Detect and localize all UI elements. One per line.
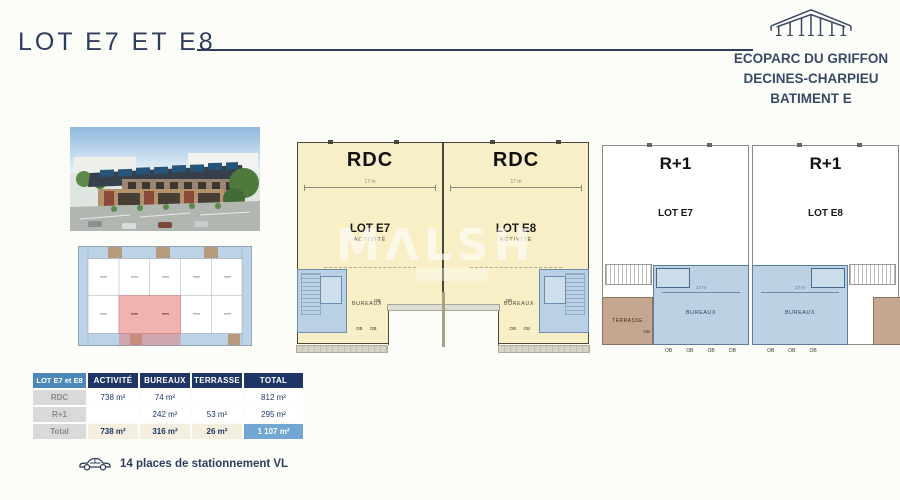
ob-label: OB [509,326,516,331]
malsh-watermark: MΛLSH [336,220,535,271]
building-render-image [70,127,260,231]
cell-rdc-activite: 738 m² [88,390,138,405]
dimension-text: 17 m [298,179,442,185]
brand-block: ECOPARC DU GRIFFON DECINES-CHARPIEU BATI… [722,6,900,109]
terrasse-zone [873,297,900,345]
dimension-tick [490,140,495,144]
dimension-tick [857,143,862,147]
cell-rdc-total: 812 m² [244,390,303,405]
car-icon [78,455,112,477]
dimension-line [450,187,582,188]
dimension-line [304,187,436,188]
dimension-text: 17 m [753,285,847,290]
title-rule [197,49,753,51]
ob-label: OB [356,326,363,331]
bureaux-label: BUREAUX [654,310,748,316]
dimension-tick [647,143,652,147]
floor-label-rdc: RDC [298,149,442,172]
r1-plan-lot-e7: R+1 LOT E7 17 m BUREAUX TERRASSE OB OB O… [602,145,749,345]
dimension-tick [394,140,399,144]
terrasse-zone: TERRASSE OB [602,297,653,345]
dimension-tick [328,140,333,144]
brand-name: ECOPARC DU GRIFFON [722,49,900,69]
stairs-hatch [301,273,321,315]
dimension-text: 17 m [654,285,748,290]
row-label-r1: R+1 [33,407,86,422]
building-frame-icon [763,31,859,48]
bureaux-zone: 17 m BUREAUX [653,265,749,345]
cell-total-bureaux: 316 m² [140,424,190,439]
ob-label: OB [707,348,714,354]
dimension-text: 17 m [444,179,588,185]
ob-label: OB [523,326,530,331]
entrance-notch [388,311,444,345]
cell-rdc-bureaux: 74 m² [140,390,190,405]
bureaux-zone: 17 m BUREAUX [752,265,848,345]
exterior-stairs-hatch [605,264,652,285]
ob-label: OB [665,348,672,354]
stairwell-zone [539,269,589,333]
table-corner-cell: LOT E7 et E8 [33,373,86,388]
ob-label: OB [643,329,650,334]
bureaux-label: BUREAUX [753,310,847,316]
surface-summary-table: LOT E7 et E8 ACTIVITÉ BUREAUX TERRASSE T… [33,373,303,439]
col-header-terrasse: TERRASSE [192,373,242,388]
terrasse-label: TERRASSE [603,318,652,324]
row-label-rdc: RDC [33,390,86,405]
lot-label: LOT E7 [603,208,748,219]
exterior-terrace-strip [296,345,388,353]
cell-r1-terrasse: 53 m² [192,407,242,422]
entrance-notch [443,311,499,345]
exterior-terrace-strip [498,345,590,353]
cell-r1-activite [88,407,138,422]
lot-label: LOT E8 [753,208,898,219]
stairs-hatch [565,273,585,315]
col-header-bureaux: BUREAUX [140,373,190,388]
floor-label-r1: R+1 [603,154,748,174]
floor-label-r1: R+1 [753,154,898,174]
brand-building: BATIMENT E [722,89,900,109]
cell-r1-bureaux: 242 m² [140,407,190,422]
dimension-tick [556,140,561,144]
stairwell-zone [297,269,347,333]
row-label-total: Total [33,424,86,439]
page-title: LOT E7 ET E8 [18,28,216,57]
dimension-tick [707,143,712,147]
site-key-plan [78,246,252,346]
col-header-activite: ACTIVITÉ [88,373,138,388]
ob-label: OB [767,348,774,354]
cell-total-activite: 738 m² [88,424,138,439]
brand-city: DECINES-CHARPIEU [722,69,900,89]
dimension-line [761,292,839,293]
r1-floorplan-block: R+1 LOT E7 17 m BUREAUX TERRASSE OB OB O… [602,145,900,355]
r1-plan-lot-e8: R+1 LOT E8 17 m BUREAUX OB OB OB [752,145,899,345]
ob-label: OB [374,298,381,303]
cell-rdc-terrasse [192,390,242,405]
dimension-tick [797,143,802,147]
cell-total-total: 1 107 m² [244,424,303,439]
floor-label-rdc: RDC [444,149,588,172]
ob-label: OB [505,298,512,303]
technical-room [544,276,566,304]
col-header-total: TOTAL [244,373,303,388]
ob-label: OB [370,326,377,331]
watermark-subline [416,268,488,281]
ob-label: OB [809,348,816,354]
ob-row: OB OB OB OB [665,348,736,354]
ob-label: OB [788,348,795,354]
ob-label: OB [686,348,693,354]
ob-row: OB OB OB [767,348,817,354]
ob-label: OB [729,348,736,354]
exterior-stairs-hatch [849,264,896,285]
parking-count-label: 14 places de stationnement VL [120,458,288,470]
dimension-line [662,292,740,293]
technical-room [320,276,342,304]
cell-total-terrasse: 26 m² [192,424,242,439]
party-wall-line [442,292,445,347]
cell-r1-total: 295 m² [244,407,303,422]
